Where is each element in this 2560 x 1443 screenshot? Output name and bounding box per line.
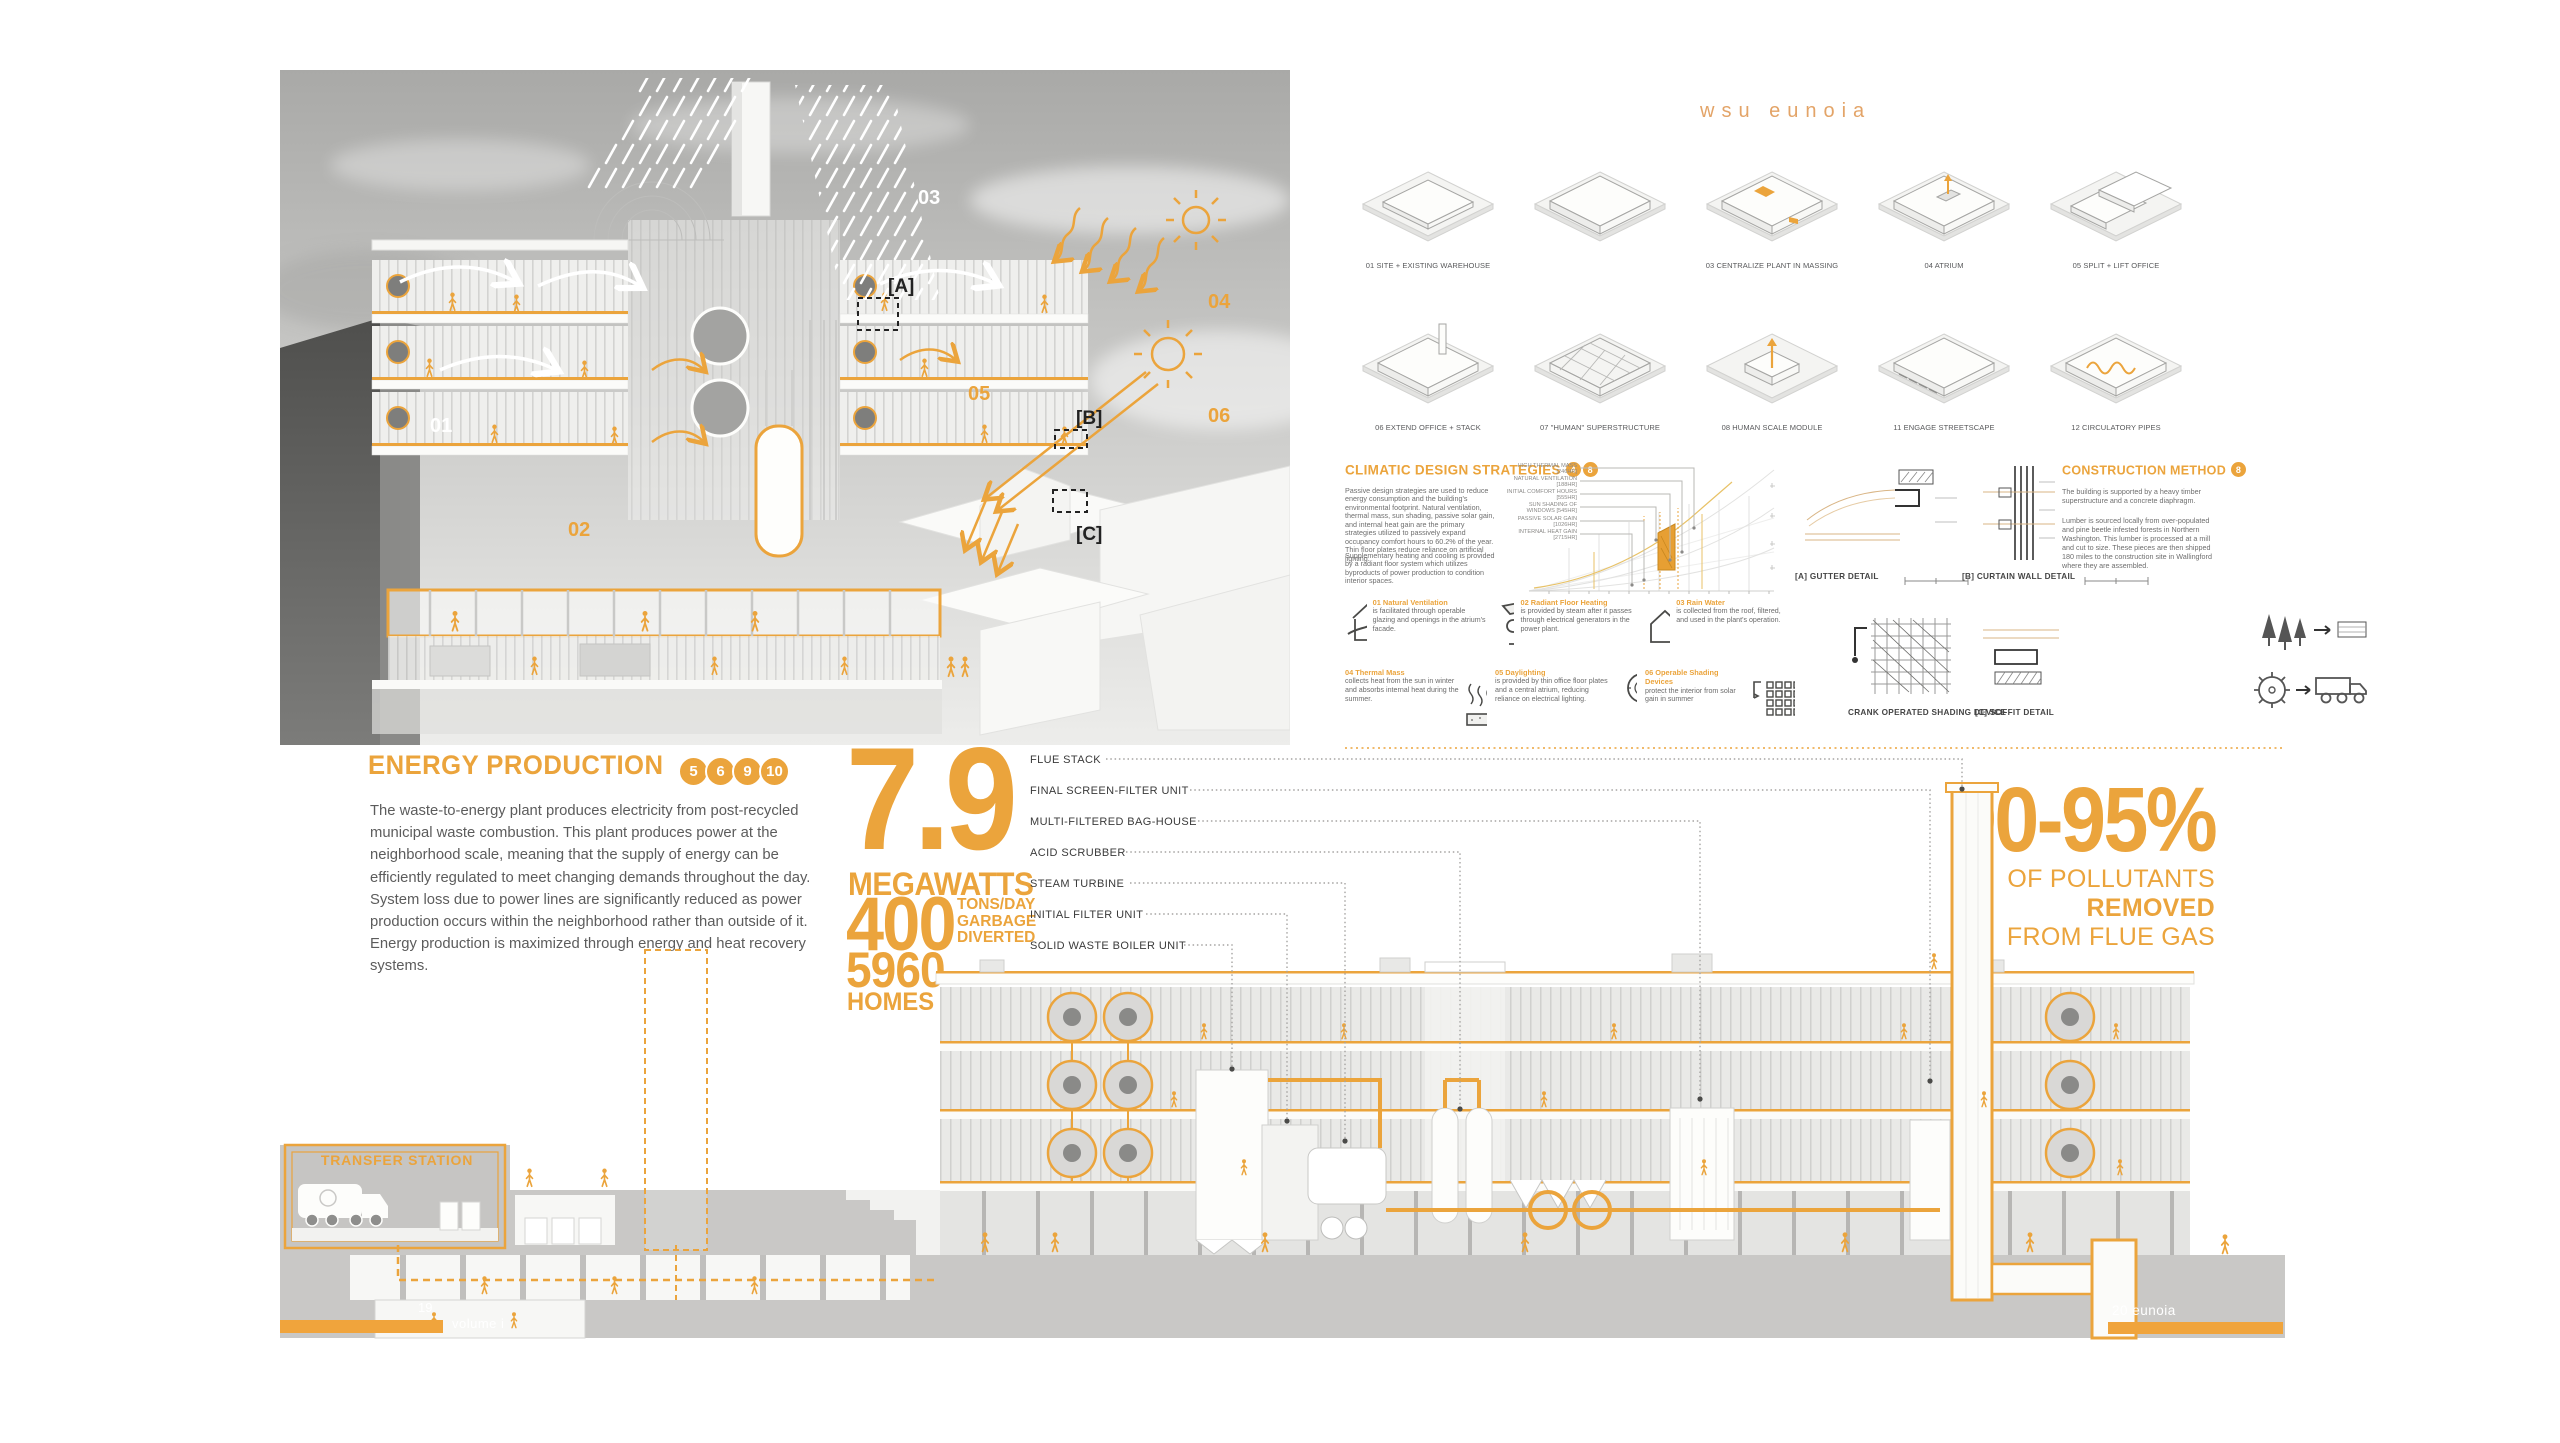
strategy-title: 03 Rain Water bbox=[1676, 598, 1787, 607]
massing-diagram-02 bbox=[1525, 156, 1675, 256]
bins bbox=[525, 1218, 601, 1244]
steam-turbine-unit bbox=[1308, 1148, 1386, 1204]
strategy-title: 01 Natural Ventilation bbox=[1373, 598, 1487, 607]
strategies-row2: 04 Thermal Masscollects heat from the su… bbox=[1345, 668, 1795, 730]
chart-label-internal-heat: INTERNAL HEAT GAIN [2715HR] bbox=[1505, 530, 1577, 541]
callout-C: [C] bbox=[1076, 524, 1102, 545]
chart-label-thermal-mass: HIGH THERMAL MASS [246HR] bbox=[1505, 464, 1577, 475]
massing-cell: 08 HUMAN SCALE MODULE bbox=[1686, 318, 1858, 432]
massing-diagram-07 bbox=[1525, 318, 1675, 418]
callout-03: 03 bbox=[918, 187, 940, 209]
strategy-item: 02 Radiant Floor Heatingis provided by s… bbox=[1495, 598, 1637, 654]
strategy-text: 06 Operable Shading Devicesprotect the i… bbox=[1645, 668, 1745, 730]
massing-label: 03 CENTRALIZE PLANT IN MASSING bbox=[1706, 261, 1838, 270]
boiler-unit bbox=[1196, 1070, 1268, 1240]
thermal-mass-sun-icon bbox=[1465, 668, 1487, 730]
massing-label: 06 EXTEND OFFICE + STACK bbox=[1375, 423, 1481, 432]
climatic-paragraph-2: Supplementary heating and cooling is pro… bbox=[1345, 552, 1497, 586]
massing-cell: 01 SITE + EXISTING WAREHOUSE bbox=[1342, 156, 1514, 270]
massing-diagram-11 bbox=[1869, 318, 2019, 418]
lightbulb-icon bbox=[1620, 668, 1637, 730]
chart-label-natural-ventilation: NATURAL VENTILATION [188HR] bbox=[1505, 477, 1577, 488]
chart-label-passive-solar: PASSIVE SOLAR GAIN [1026HR] bbox=[1505, 517, 1577, 528]
strategy-desc: is collected from the roof, filtered, an… bbox=[1676, 607, 1787, 625]
callout-01: 01 bbox=[430, 415, 452, 437]
base-frame bbox=[388, 590, 940, 636]
flue-stack bbox=[1946, 783, 1998, 1300]
ground-line bbox=[372, 680, 942, 689]
callout-04: 04 bbox=[1208, 291, 1231, 313]
project-title: wsu eunoia bbox=[1700, 100, 1871, 123]
page-number-left: 19 bbox=[418, 1300, 432, 1315]
massing-cell bbox=[1514, 156, 1686, 270]
massing-label: 04 ATRIUM bbox=[1924, 261, 1963, 270]
trees-icon bbox=[2262, 614, 2306, 650]
massing-cell: 06 EXTEND OFFICE + STACK bbox=[1342, 318, 1514, 432]
strategy-desc: protect the interior from solar gain in … bbox=[1645, 687, 1745, 705]
presentation-board: 01 02 03 04 05 06 [A] [B] [C] wsu eunoia… bbox=[0, 0, 2560, 1443]
strategy-item: 01 Natural Ventilationis facilitated thr… bbox=[1345, 598, 1487, 654]
construction-badge: 8 bbox=[2231, 462, 2246, 477]
soffit-detail-drawing bbox=[1975, 608, 2067, 704]
strategy-item: 04 Thermal Masscollects heat from the su… bbox=[1345, 668, 1487, 730]
callout-02: 02 bbox=[568, 519, 590, 541]
massing-grid-row2: 06 EXTEND OFFICE + STACK 07 "HUMAN" SUPE… bbox=[1342, 318, 2202, 432]
plant-long-section bbox=[936, 783, 2194, 1338]
massing-label: 11 ENGAGE STREETSCAPE bbox=[1893, 423, 1994, 432]
strategy-desc: collects heat from the sun in winter and… bbox=[1345, 677, 1459, 703]
construction-heading-text: CONSTRUCTION METHOD bbox=[2062, 464, 2226, 478]
massing-label: 07 "HUMAN" SUPERSTRUCTURE bbox=[1540, 423, 1660, 432]
final-screen-filter-unit bbox=[1910, 1120, 1950, 1240]
curtain-wall-detail-drawing bbox=[1975, 462, 2067, 564]
rooftop-units bbox=[980, 954, 2004, 972]
strategy-item: 05 Daylightingis provided by thin office… bbox=[1495, 668, 1637, 730]
page-number-right: 20 eunoia bbox=[2112, 1303, 2176, 1318]
construction-heading: CONSTRUCTION METHOD8 bbox=[2062, 462, 2246, 478]
strategy-text: 01 Natural Ventilationis facilitated thr… bbox=[1373, 598, 1487, 654]
digester-tanks-right bbox=[2046, 993, 2094, 1177]
curtain-wall-detail-label: [B] CURTAIN WALL DETAIL bbox=[1962, 572, 2075, 581]
rainwater-house-icon bbox=[1645, 598, 1670, 654]
scrubber-vessel bbox=[756, 426, 802, 556]
strategy-desc: is facilitated through operable glazing … bbox=[1373, 607, 1487, 633]
acid-scrubber-tower bbox=[1432, 1108, 1458, 1223]
volume-label: volume i bbox=[452, 1316, 504, 1331]
massing-diagram-08 bbox=[1697, 318, 1847, 418]
callout-B: [B] bbox=[1076, 408, 1102, 429]
strategy-title: 06 Operable Shading Devices bbox=[1645, 668, 1745, 687]
arrow-icon bbox=[2314, 626, 2330, 634]
construction-paragraph-2: Lumber is sourced locally from over-popu… bbox=[2062, 516, 2217, 570]
strategy-item: 03 Rain Wateris collected from the roof,… bbox=[1645, 598, 1787, 654]
massing-cell: 03 CENTRALIZE PLANT IN MASSING bbox=[1686, 156, 1858, 270]
lumber-icon bbox=[2338, 622, 2366, 637]
strategy-title: 02 Radiant Floor Heating bbox=[1520, 598, 1637, 607]
strategy-text: 02 Radiant Floor Heatingis provided by s… bbox=[1520, 598, 1637, 654]
strategy-desc: is provided by steam after it passes thr… bbox=[1520, 607, 1637, 633]
callout-06: 06 bbox=[1208, 405, 1230, 427]
massing-diagram-04 bbox=[1869, 156, 2019, 256]
massing-cell: 07 "HUMAN" SUPERSTRUCTURE bbox=[1514, 318, 1686, 432]
hero-section-rendering: 01 02 03 04 05 06 [A] [B] [C] bbox=[280, 70, 1290, 745]
soffit-detail-label: [C] SOFFIT DETAIL bbox=[1975, 708, 2054, 717]
saw-blade-icon bbox=[2254, 672, 2290, 708]
dark-wall bbox=[280, 318, 380, 745]
gutter-detail-label: [A] GUTTER DETAIL bbox=[1795, 572, 1879, 581]
crank-shading-drawing bbox=[1845, 608, 1967, 704]
strategies-row1: 01 Natural Ventilationis facilitated thr… bbox=[1345, 598, 1787, 654]
transfer-station-label: TRANSFER STATION bbox=[312, 1152, 482, 1168]
massing-diagram-05 bbox=[2041, 156, 2191, 256]
strategy-item: 06 Operable Shading Devicesprotect the i… bbox=[1645, 668, 1795, 730]
ventilation-house-icon bbox=[1345, 598, 1367, 654]
footer-bar-left bbox=[280, 1320, 443, 1333]
massing-grid-row1: 01 SITE + EXISTING WAREHOUSE 03 CENTRALI… bbox=[1342, 156, 2202, 270]
footer-bar-right bbox=[2108, 1322, 2283, 1334]
strategy-text: 05 Daylightingis provided by thin office… bbox=[1495, 668, 1614, 730]
radiant-coil-icon bbox=[1495, 598, 1514, 654]
chart-label-comfort-hours: INITIAL COMFORT HOURS [555HR] bbox=[1505, 490, 1577, 501]
arrow-icon-2 bbox=[2296, 686, 2310, 694]
massing-diagram-01 bbox=[1353, 156, 1503, 256]
chart-label-sun-shading: SUN SHADING OF WINDOWS [545HR] bbox=[1505, 503, 1577, 514]
strategy-desc: is provided by thin office floor plates … bbox=[1495, 677, 1614, 703]
strategy-text: 03 Rain Wateris collected from the roof,… bbox=[1676, 598, 1787, 654]
truck-icon bbox=[2316, 678, 2366, 703]
massing-label: 05 SPLIT + LIFT OFFICE bbox=[2073, 261, 2160, 270]
shading-screen-icon bbox=[1751, 668, 1795, 730]
strategy-title: 05 Daylighting bbox=[1495, 668, 1614, 677]
gutter-detail-drawing bbox=[1795, 462, 1965, 564]
massing-cell: 04 ATRIUM bbox=[1858, 156, 2030, 270]
massing-diagram-03 bbox=[1697, 156, 1847, 256]
construction-process-icons bbox=[2248, 598, 2372, 720]
massing-label: 08 HUMAN SCALE MODULE bbox=[1722, 423, 1823, 432]
massing-label: 12 CIRCULATORY PIPES bbox=[2071, 423, 2160, 432]
massing-cell: 05 SPLIT + LIFT OFFICE bbox=[2030, 156, 2202, 270]
massing-cell: 12 CIRCULATORY PIPES bbox=[2030, 318, 2202, 432]
strategy-title: 04 Thermal Mass bbox=[1345, 668, 1459, 677]
massing-cell: 11 ENGAGE STREETSCAPE bbox=[1858, 318, 2030, 432]
massing-label: 01 SITE + EXISTING WAREHOUSE bbox=[1366, 261, 1490, 270]
massing-diagram-12 bbox=[2041, 318, 2191, 418]
massing-diagram-06 bbox=[1353, 318, 1503, 418]
callout-A: [A] bbox=[888, 276, 914, 297]
callout-05: 05 bbox=[968, 383, 990, 405]
construction-paragraph-1: The building is supported by a heavy tim… bbox=[2062, 487, 2217, 505]
bottom-section-drawing bbox=[280, 740, 2285, 1385]
strategy-text: 04 Thermal Masscollects heat from the su… bbox=[1345, 668, 1459, 730]
